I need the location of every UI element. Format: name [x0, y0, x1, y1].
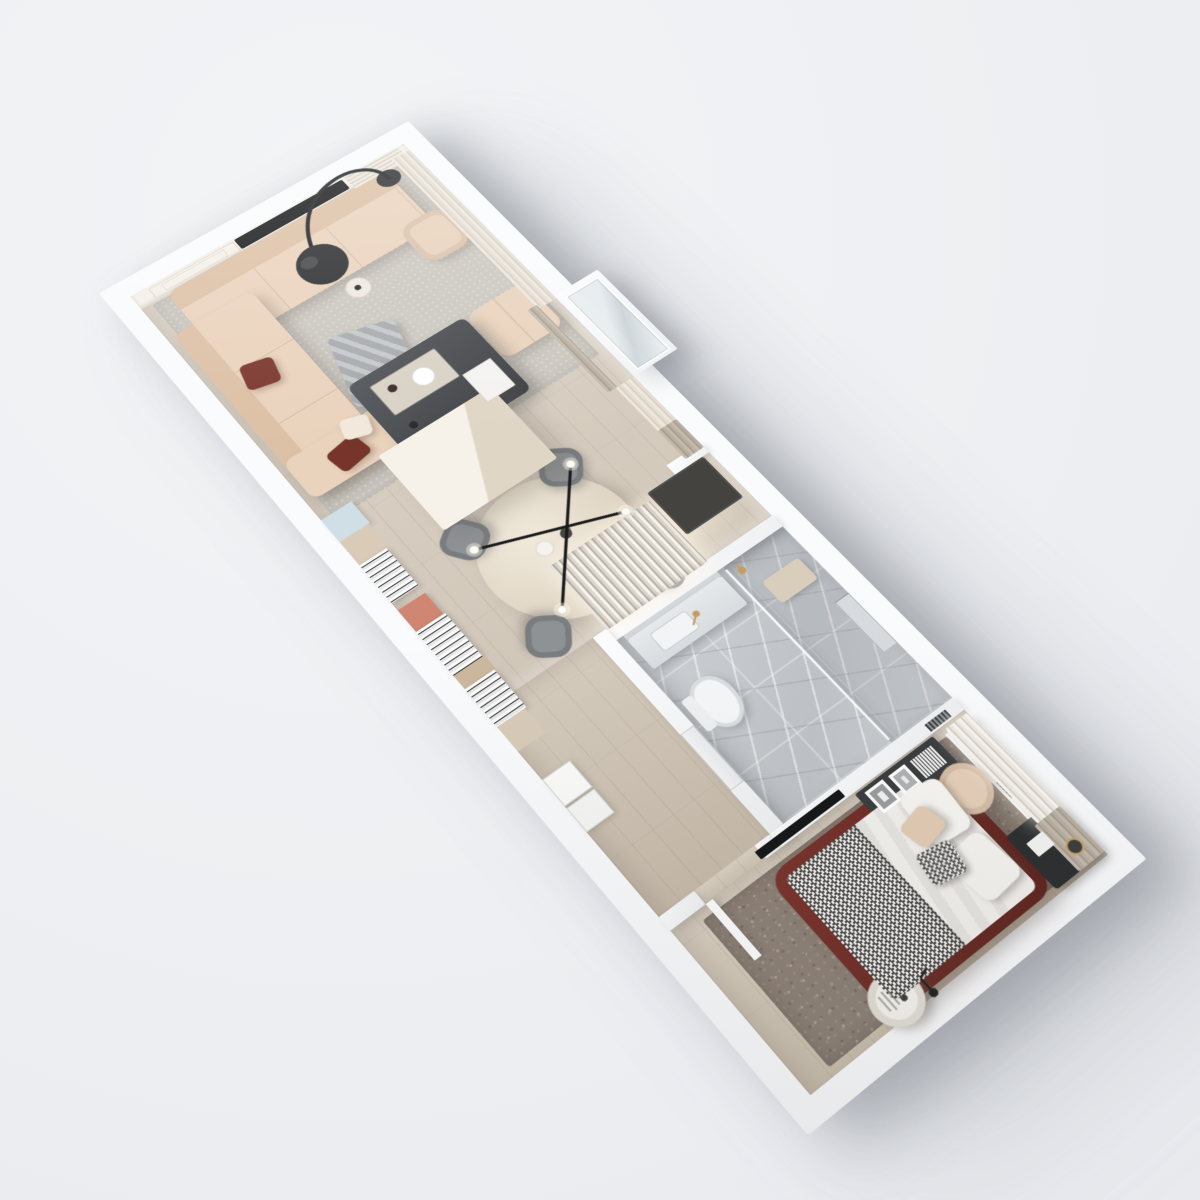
apartment-floor-plan — [99, 121, 1147, 1135]
dining-chair — [524, 614, 573, 658]
render-canvas — [0, 0, 1200, 1200]
